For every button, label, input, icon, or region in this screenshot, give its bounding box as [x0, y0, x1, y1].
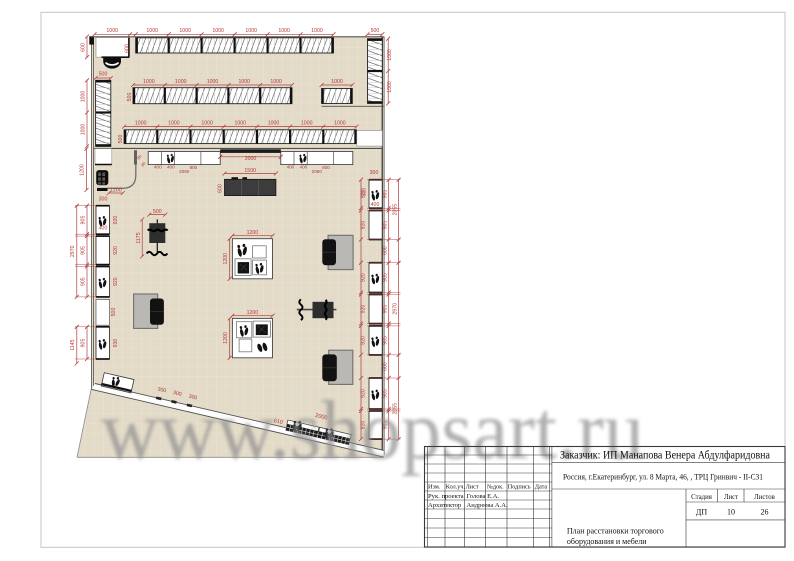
svg-text:Листов: Листов: [754, 494, 775, 501]
svg-text:1175: 1175: [136, 232, 142, 243]
svg-text:930: 930: [113, 339, 119, 348]
svg-text:ДП: ДП: [696, 508, 707, 517]
svg-text:1000: 1000: [331, 79, 343, 85]
svg-text:Рук. проекта: Рук. проекта: [428, 493, 464, 500]
svg-text:905: 905: [80, 216, 86, 225]
svg-text:Заказчик: ИП Манапова Венера: Заказчик: ИП Манапова Венера Абдулфаридо…: [560, 449, 770, 461]
svg-text:400: 400: [167, 165, 175, 170]
svg-text:1500: 1500: [244, 168, 256, 174]
svg-text:10: 10: [727, 508, 735, 517]
svg-text:Подпись: Подпись: [508, 484, 531, 491]
svg-text:500: 500: [371, 28, 380, 34]
svg-text:Стадия: Стадия: [691, 494, 712, 501]
svg-text:1200: 1200: [223, 253, 229, 265]
svg-text:1000: 1000: [387, 81, 393, 93]
svg-text:2970: 2970: [392, 303, 398, 315]
svg-text:1145: 1145: [70, 339, 76, 350]
svg-text:400: 400: [154, 165, 162, 170]
svg-text:920: 920: [361, 273, 367, 282]
svg-text:№док.: №док.: [487, 484, 504, 491]
svg-text:800: 800: [322, 165, 330, 170]
svg-text:1000: 1000: [80, 124, 86, 136]
svg-text:Лист: Лист: [466, 484, 479, 491]
svg-text:500: 500: [127, 93, 133, 102]
svg-text:1000: 1000: [239, 79, 251, 85]
svg-text:905: 905: [383, 336, 389, 345]
svg-text:1000: 1000: [270, 79, 282, 85]
svg-text:1000: 1000: [212, 28, 224, 34]
svg-text:1200: 1200: [247, 230, 259, 236]
svg-text:600: 600: [124, 44, 130, 53]
svg-text:1000: 1000: [106, 28, 118, 34]
svg-text:500: 500: [118, 135, 124, 144]
svg-text:920: 920: [361, 305, 367, 314]
svg-text:Изм.: Изм.: [428, 484, 441, 491]
svg-text:Лист: Лист: [724, 494, 738, 501]
svg-text:1000: 1000: [207, 79, 219, 85]
svg-text:1000: 1000: [311, 28, 323, 34]
svg-text:300: 300: [370, 170, 379, 176]
svg-text:Кол.уч.: Кол.уч.: [446, 484, 466, 491]
svg-text:www.shopsart.ru: www.shopsart.ru: [101, 384, 644, 477]
svg-text:2055: 2055: [392, 204, 398, 216]
svg-text:2000: 2000: [245, 156, 257, 162]
svg-text:1000: 1000: [201, 121, 213, 127]
svg-text:600: 600: [383, 246, 389, 255]
svg-text:920: 920: [361, 336, 367, 345]
svg-text:1000: 1000: [175, 79, 187, 85]
svg-text:300: 300: [99, 196, 108, 202]
svg-text:Голова Е.А.: Голова Е.А.: [467, 493, 500, 500]
svg-text:1000: 1000: [80, 91, 86, 103]
svg-text:920: 920: [361, 221, 367, 230]
svg-text:1000: 1000: [146, 28, 158, 34]
svg-text:320: 320: [362, 188, 368, 197]
svg-text:905: 905: [80, 339, 86, 348]
svg-text:920: 920: [113, 246, 119, 255]
svg-text:905: 905: [80, 246, 86, 255]
svg-text:920: 920: [113, 216, 119, 225]
svg-text:Дата: Дата: [535, 484, 548, 491]
svg-text:1000: 1000: [334, 121, 346, 127]
svg-text:400: 400: [99, 225, 108, 231]
svg-text:1200: 1200: [80, 164, 86, 176]
svg-text:905: 905: [383, 273, 389, 282]
svg-text:2060: 2060: [179, 169, 190, 174]
svg-text:905: 905: [80, 277, 86, 286]
svg-text:1000: 1000: [235, 121, 247, 127]
svg-text:1200: 1200: [223, 332, 229, 344]
svg-text:905: 905: [383, 190, 389, 199]
svg-text:500: 500: [153, 209, 162, 215]
svg-text:1200: 1200: [247, 310, 259, 316]
svg-text:905: 905: [383, 221, 389, 230]
svg-text:1000: 1000: [245, 28, 257, 34]
svg-text:оборудования и мебели: оборудования и мебели: [567, 537, 647, 546]
svg-text:500: 500: [111, 308, 117, 317]
svg-text:1000: 1000: [387, 49, 393, 61]
svg-text:1000: 1000: [268, 121, 280, 127]
svg-text:2970: 2970: [70, 245, 76, 257]
svg-text:400: 400: [371, 202, 380, 208]
svg-text:1000: 1000: [179, 28, 191, 34]
svg-text:1000: 1000: [135, 121, 147, 127]
svg-text:600: 600: [383, 362, 389, 371]
svg-text:26: 26: [761, 508, 769, 517]
svg-text:1000: 1000: [143, 79, 155, 85]
svg-text:600: 600: [80, 43, 86, 52]
svg-text:Архитектор: Архитектор: [428, 502, 462, 509]
svg-text:1200: 1200: [110, 188, 122, 194]
svg-text:1000: 1000: [301, 121, 313, 127]
svg-text:800: 800: [190, 165, 198, 170]
svg-text:2060: 2060: [312, 169, 323, 174]
svg-text:План расстановки торгового: План расстановки торгового: [567, 527, 664, 536]
svg-text:920: 920: [113, 277, 119, 286]
svg-text:600: 600: [218, 184, 224, 193]
svg-text:Андреева А.А.: Андреева А.А.: [467, 502, 509, 509]
svg-text:400: 400: [300, 165, 308, 170]
svg-text:1000: 1000: [168, 121, 180, 127]
svg-text:905: 905: [383, 305, 389, 314]
svg-text:400: 400: [287, 165, 295, 170]
svg-text:1000: 1000: [278, 28, 290, 34]
svg-text:Россия, г.Екатеринбург, ул. 8: Россия, г.Екатеринбург, ул. 8 Марта, 46,…: [563, 473, 763, 482]
svg-text:500: 500: [99, 72, 108, 78]
